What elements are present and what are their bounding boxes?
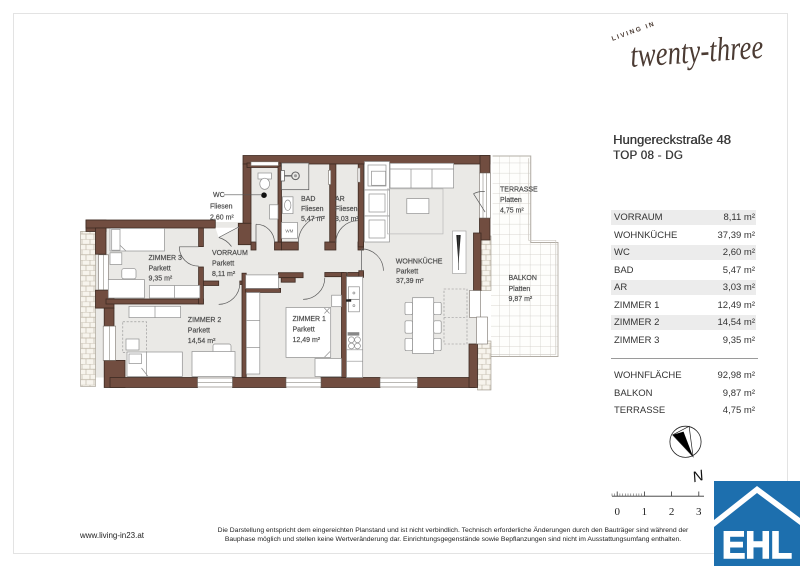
- svg-text:9,87 m²: 9,87 m²: [509, 296, 533, 303]
- svg-text:37,39 m²: 37,39 m²: [396, 278, 424, 285]
- svg-text:AR: AR: [335, 196, 345, 203]
- svg-text:BAD: BAD: [301, 196, 315, 203]
- svg-text:14,54 m²: 14,54 m²: [188, 338, 216, 345]
- svg-text:VORRAUM: VORRAUM: [212, 250, 248, 257]
- svg-text:9,35 m²: 9,35 m²: [149, 275, 173, 282]
- svg-text:12,49 m²: 12,49 m²: [293, 337, 321, 344]
- svg-text:5,47 m²: 5,47 m²: [301, 216, 325, 223]
- svg-text:3,03 m²: 3,03 m²: [335, 216, 359, 223]
- svg-text:Parkett: Parkett: [212, 261, 234, 268]
- svg-text:Platten: Platten: [500, 197, 522, 204]
- svg-text:WC: WC: [213, 192, 225, 199]
- svg-text:BALKON: BALKON: [509, 275, 537, 282]
- svg-text:WM: WM: [285, 229, 293, 234]
- svg-text:Parkett: Parkett: [188, 328, 210, 335]
- svg-text:ZIMMER 3: ZIMMER 3: [149, 255, 183, 262]
- svg-text:Parkett: Parkett: [396, 269, 418, 276]
- svg-text:8,11 m²: 8,11 m²: [212, 271, 236, 278]
- svg-text:Parkett: Parkett: [293, 327, 315, 334]
- svg-text:Fliesen: Fliesen: [335, 206, 358, 213]
- svg-text:4,75 m²: 4,75 m²: [500, 208, 524, 215]
- svg-text:TERRASSE: TERRASSE: [500, 187, 538, 194]
- svg-text:Platten: Platten: [509, 286, 531, 293]
- svg-text:ZIMMER 1: ZIMMER 1: [293, 316, 327, 323]
- svg-text:Fliesen: Fliesen: [210, 204, 233, 211]
- svg-text:WOHNKÜCHE: WOHNKÜCHE: [396, 258, 443, 266]
- svg-text:ZIMMER 2: ZIMMER 2: [188, 317, 222, 324]
- svg-text:Fliesen: Fliesen: [301, 206, 324, 213]
- svg-text:Parkett: Parkett: [149, 265, 171, 272]
- svg-text:2,60 m²: 2,60 m²: [210, 215, 234, 222]
